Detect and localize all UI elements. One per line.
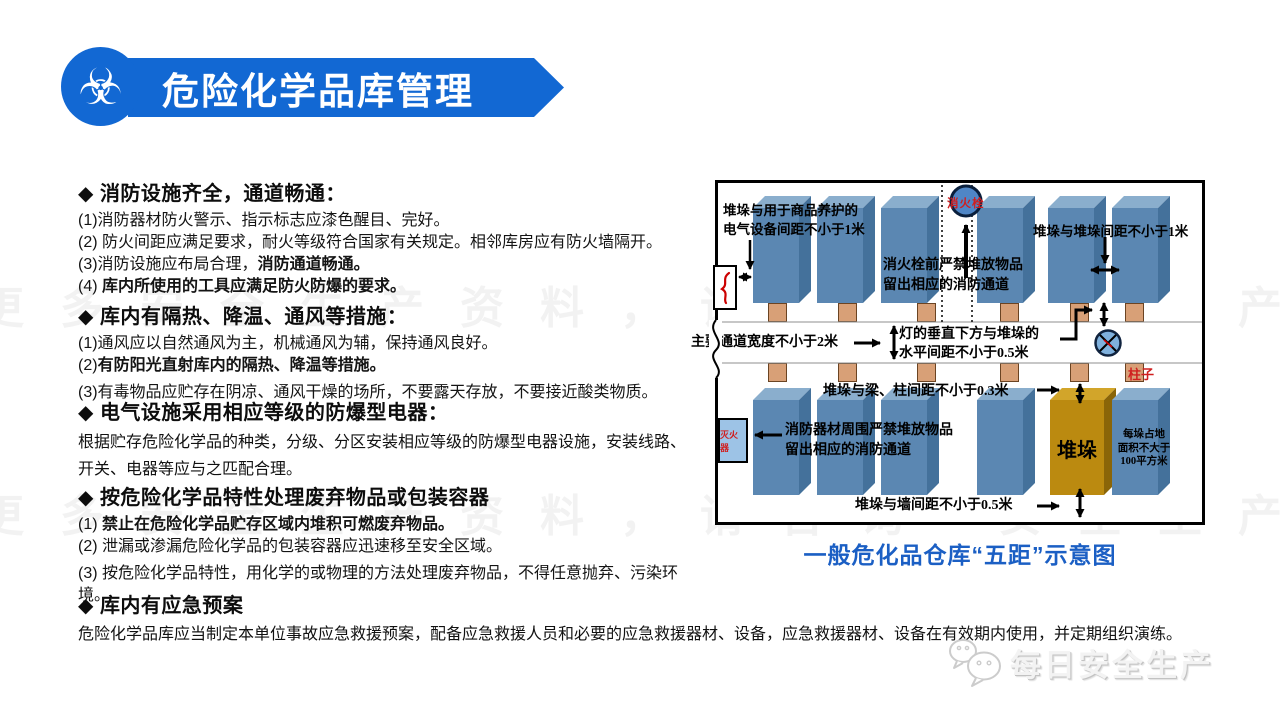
label-stack-to-beam: 堆垛与梁、柱间距不小于0.3米 [823, 382, 1009, 402]
section-fire-facilities: ◆ 消防设施齐全，通道畅通： (1)消防器材防火警示、指示标志应漆色醒目、完好。… [78, 177, 700, 298]
electrical-device-icon [713, 265, 737, 310]
label-lamp-distance: 灯的垂直下方与堆垛的 水平间距不小于0.5米 [899, 325, 1039, 363]
section-insulation-ventilation: ◆ 库内有隔热、降温、通风等措施： (1)通风应以自然通风为主，机械通风为辅，保… [78, 300, 700, 404]
list-item: (1)消防器材防火警示、指示标志应漆色醒目、完好。 [78, 210, 700, 232]
biohazard-icon: ☣ [78, 62, 123, 112]
diagram-caption: 一般危化品仓库“五距”示意图 [715, 536, 1205, 570]
list-item: (4) 库内所使用的工具应满足防火防爆的要求。 [78, 276, 700, 298]
slide: 更多安全生产资料，请咨询“安全生产” 更多安全生产资料，请咨询“安全生产” ☣ … [0, 0, 1280, 720]
wechat-icon [946, 636, 1006, 688]
logo-text: 每日安全生产 [1010, 640, 1214, 685]
list-item: (3)消防设施应布局合理，消防通道畅通。 [78, 254, 700, 276]
fire-hydrant-label: 消火栓 [947, 194, 985, 214]
label-stack-to-stack: 堆垛与堆垛间距不小于1米 [1033, 222, 1188, 241]
fire-extinguisher-label: 灭火器 [720, 428, 746, 454]
label-fire-equipment-warning: 消防器材周围严禁堆放物品 留出相应的消防通道 [785, 421, 953, 461]
list-item: (2) 泄漏或渗漏危险化学品的包装容器应迅速移至安全区域。 [78, 536, 700, 558]
list-item: (2)有防阳光直射库内的隔热、降温等措施。 [78, 355, 700, 377]
section-body: 根据贮存危险化学品的种类，分级、分区安装相应等级的防爆型电器设施，安装线路、 开… [78, 429, 723, 483]
list-item: (1) 禁止在危险化学品贮存区域内堆积可燃废弃物品。 [78, 514, 700, 536]
elbow-arrow [1060, 310, 1092, 339]
section-header: ◆ 库内有应急预案 [78, 589, 1248, 618]
label-hydrant-warning: 消火栓前严禁堆放物品 留出相应的消防通道 [883, 256, 1023, 296]
section-header: ◆ 库内有隔热、降温、通风等措施： [78, 300, 700, 329]
logo: 每日安全生产 [946, 636, 1214, 688]
label-stack-to-care-equipment: 堆垛与用于商品养护的 电气设备间距不小于1米 [723, 201, 865, 239]
page-title: 危险化学品库管理 [162, 61, 474, 115]
warehouse-five-distance-diagram: 堆垛 每垛占地 面积不大于 100平方米 [715, 180, 1205, 525]
section-header: ◆ 消防设施齐全，通道畅通： [78, 177, 700, 206]
biohazard-badge: ☣ [61, 47, 140, 126]
section-explosion-proof-electrics: ◆ 电气设施采用相应等级的防爆型电器： 根据贮存危险化学品的种类，分级、分区安装… [78, 396, 723, 483]
list-item: (1)通风应以自然通风为主，机械通风为辅，保持通风良好。 [78, 333, 700, 355]
fire-extinguisher: 灭火器 [718, 418, 748, 463]
label-stack-to-wall: 堆垛与墙间距不小于0.5米 [855, 496, 1013, 516]
list-item: (2) 防火间距应满足要求，耐火等级符合国家有关规定。相邻库房应有防火墙隔开。 [78, 232, 700, 254]
pillar-label: 柱子 [1128, 365, 1154, 385]
wall-break [709, 320, 722, 378]
section-header: ◆ 按危险化学品特性处理废弃物品或包装容器 [78, 481, 700, 510]
title-banner: 危险化学品库管理 [128, 58, 564, 117]
section-header: ◆ 电气设施采用相应等级的防爆型电器： [78, 396, 723, 425]
